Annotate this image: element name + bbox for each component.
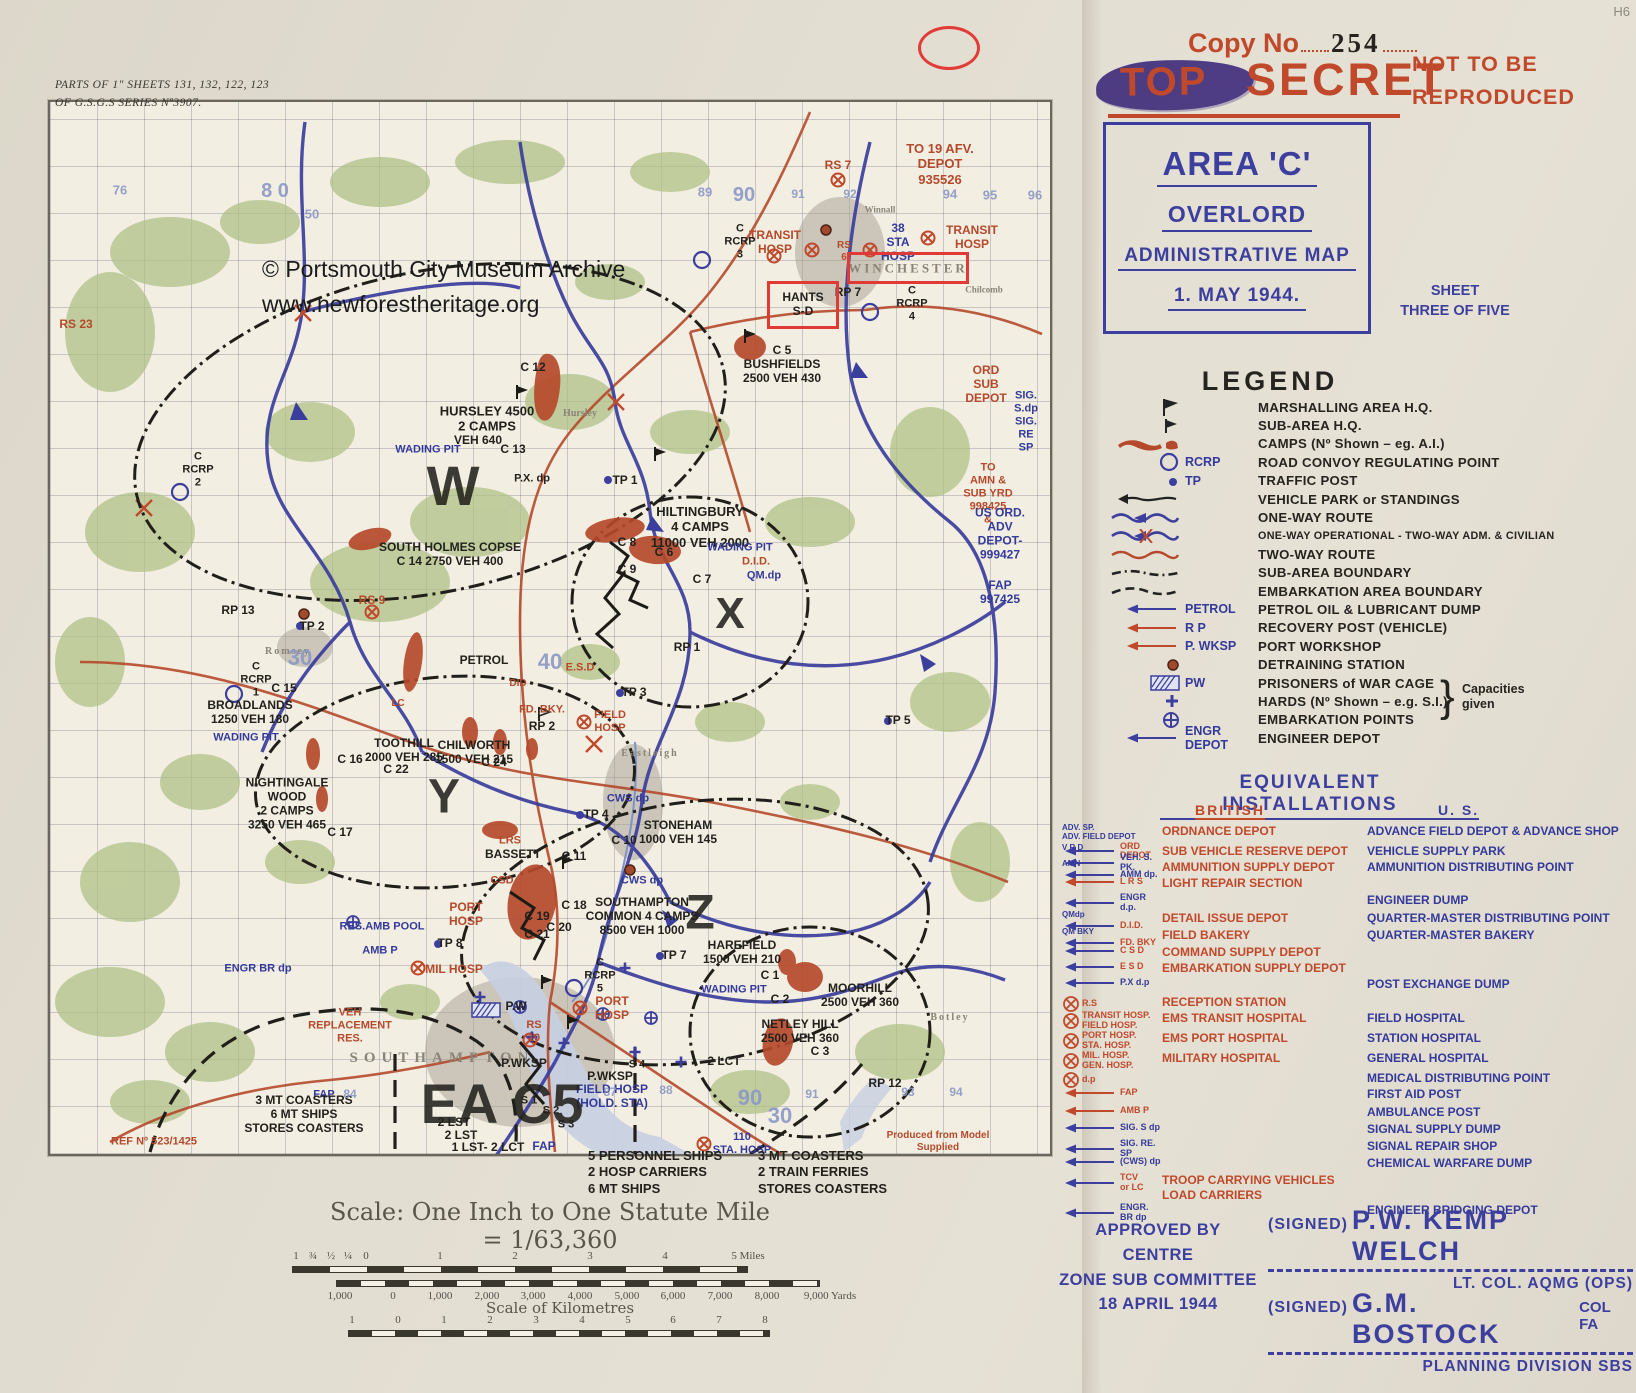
equivalents-row: C S DCOMMAND SUPPLY DEPOT — [1062, 945, 1632, 961]
rhosp-icon — [920, 230, 937, 247]
map-label: FAP — [532, 1139, 555, 1153]
map-label: CSD — [490, 875, 513, 888]
map-label: QM.dp — [747, 570, 781, 583]
arrb-icon: P.X d.p — [1062, 977, 1162, 989]
map-label: TOOTHILL 2000 VEH 285 — [365, 736, 443, 764]
legend-label: MARSHALLING AREA H.Q. — [1258, 400, 1433, 415]
map-label: C 10 — [611, 833, 636, 847]
scale-title: Scale: One Inch to One Statute Mile = 1/… — [330, 1198, 770, 1254]
scale-tick: 5 — [625, 1314, 631, 1326]
det-icon — [819, 223, 833, 237]
map-label: C 12 — [520, 360, 545, 374]
arrb-icon — [1100, 732, 1180, 744]
map-label: C RCRP 2 — [182, 451, 213, 490]
tp-icon — [1100, 474, 1180, 488]
signatory-name: P.W. KEMP WELCH — [1352, 1205, 1627, 1267]
scale-tick: 5 Miles — [731, 1250, 764, 1262]
stamp-top-word: TOP — [1120, 59, 1208, 106]
archive-watermark: © Portsmouth City Museum Archive www.new… — [262, 252, 625, 321]
column-british: BRITISH — [1195, 802, 1265, 820]
arrb-icon: C S D — [1062, 945, 1162, 957]
legend-label: PORT WORKSHOP — [1258, 639, 1381, 654]
pw-icon — [471, 1002, 501, 1018]
map-label: 95 — [983, 187, 997, 202]
map-label: C 11 — [562, 849, 587, 863]
equivalents-row: TRANSIT HOSP. FIELD HOSP.EMS TRANSIT HOS… — [1062, 1011, 1632, 1031]
title-operation: OVERLORD — [1162, 201, 1312, 232]
map-label: C 1 — [761, 968, 780, 982]
us-installation: GENERAL HOSPITAL — [1367, 1051, 1632, 1065]
title-date: 1. MAY 1944. — [1168, 285, 1306, 311]
scale-tick: 7,000 — [708, 1290, 733, 1302]
equivalents-row: SIG. RE. SPSIGNAL REPAIR SHOP — [1062, 1139, 1632, 1156]
subb-icon — [1100, 568, 1180, 578]
map-label: C 3 — [811, 1044, 830, 1058]
map-label: TO 19 AFV. DEPOT 935526 — [885, 141, 995, 187]
flag-icon — [513, 384, 531, 400]
equivalents-row: AMB PAMBULANCE POST — [1062, 1105, 1632, 1122]
legend-abbr: ENGR DEPOT — [1180, 724, 1258, 752]
map-label: AMB P — [362, 945, 397, 958]
map-label: LC — [391, 698, 404, 710]
us-installation: CHEMICAL WARFARE DUMP — [1367, 1156, 1632, 1170]
equivalents-row: ENGR d.p.ENGINEER DUMP — [1062, 893, 1632, 911]
equivalents-row: P.X d.pPOST EXCHANGE DUMP — [1062, 977, 1632, 995]
dotted-rule — [1301, 26, 1329, 52]
british-installation: MILITARY HOSPITAL — [1162, 1051, 1367, 1066]
us-installation: FIELD HOSPITAL — [1367, 1011, 1632, 1025]
red-highlight-box — [767, 281, 839, 329]
map-label: FD. BKY. — [519, 704, 565, 717]
map-label: RP 1 — [674, 640, 700, 654]
legend-label: SUB-AREA H.Q. — [1258, 418, 1362, 433]
map-label: C 15 — [271, 681, 296, 695]
red-oval-annotation — [918, 26, 980, 70]
map-label: C 7 — [693, 572, 712, 586]
british-installation: COMMAND SUPPLY DEPOT — [1162, 945, 1367, 960]
legend-label: RECOVERY POST (VEHICLE) — [1258, 620, 1447, 635]
map-label: C 16 — [337, 752, 362, 766]
equivalent-installations-table: ADV. SP. ADV. FIELD DEPOTORD DEPOTORDNAN… — [1062, 824, 1632, 1221]
equivalents-row: d.pMEDICAL DISTRIBUTING POINT — [1062, 1071, 1632, 1087]
legend-abbr: RCRP — [1180, 455, 1258, 469]
bhard-icon — [558, 1037, 571, 1050]
legend-row: DETRAINING STATION — [1100, 655, 1630, 673]
map-label: 30 — [768, 1103, 792, 1129]
equivalents-row: QMdpD.I.D.DETAIL ISSUE DEPOTQUARTER-MAST… — [1062, 911, 1632, 928]
legend-label: TRAFFIC POST — [1258, 473, 1358, 488]
map-label: HAREFIELD 1500 VEH 210 — [703, 938, 781, 966]
equivalents-row: TCV or LCTROOP CARRYING VEHICLES LOAD CA… — [1062, 1173, 1632, 1203]
map-label: RS 10 — [526, 1019, 541, 1045]
map-label: FIELD HOSP — [594, 709, 626, 735]
scale-tick: 0 — [390, 1290, 396, 1302]
map-label: 89 — [698, 184, 712, 199]
legend-row: SUB-AREA BOUNDARY — [1100, 564, 1630, 582]
map-label: 84 — [343, 1087, 356, 1101]
legend-label: EMBARKATION POINTS — [1258, 712, 1414, 727]
equivalents-row: MIL. HOSP. GEN. HOSP.MILITARY HOSPITALGE… — [1062, 1051, 1632, 1071]
signed-prefix: (SIGNED) — [1268, 1299, 1348, 1317]
arrr-icon — [1100, 622, 1180, 634]
equivalents-row: V R DVEH. S. PK.SUB VEHICLE RESERVE DEPO… — [1062, 844, 1632, 860]
legend-label: ROAD CONVOY REGULATING POINT — [1258, 455, 1500, 470]
flagS-icon — [1100, 418, 1180, 434]
map-label: TRANSIT HOSP — [749, 228, 801, 256]
map-label: Winnall — [865, 205, 896, 216]
bhard-icon — [629, 1046, 642, 1059]
map-label: 93 — [901, 1085, 914, 1099]
scale-tick: 1 — [349, 1314, 355, 1326]
map-label: C RCRP 3 — [724, 223, 755, 262]
map-label: W — [427, 453, 480, 519]
rcrp-icon — [563, 977, 585, 999]
ships-list-left: 5 PERSONNEL SHIPS 2 HOSP CARRIERS 6 MT S… — [588, 1148, 722, 1197]
legend-label: EMBARKATION AREA BOUNDARY — [1258, 584, 1483, 599]
us-installation: AMMUNITION DISTRIBUTING POINT — [1367, 860, 1632, 874]
map-label: 76 — [113, 182, 127, 197]
legend-row: RCRPROAD CONVOY REGULATING POINT — [1100, 453, 1630, 471]
legend-abbr: PW — [1180, 676, 1258, 690]
us-installation: FIRST AID POST — [1367, 1087, 1632, 1101]
map-label: ENGR BR dp — [224, 963, 291, 976]
map-label: P.WKSP — [501, 1056, 547, 1070]
red-highlight-box — [847, 252, 969, 284]
map-label: C 18 — [561, 898, 586, 912]
legend-abbr: R P — [1180, 621, 1258, 635]
map-label: 50 — [305, 206, 319, 221]
rhosp-icon — [410, 960, 427, 977]
map-title-box: AREA 'C' OVERLORD ADMINISTRATIVE MAP 1. … — [1103, 122, 1371, 334]
map-label: P.X. dp — [514, 473, 550, 486]
scale-tick: 2 — [487, 1314, 493, 1326]
map-label: C RCRP 1 — [240, 661, 271, 700]
map-label: VEH 640 — [454, 433, 502, 447]
crossr-icon: TRANSIT HOSP. FIELD HOSP. — [1062, 1011, 1162, 1031]
map-label: C RCRP 4 — [896, 285, 927, 324]
map-label: 30 — [288, 645, 312, 671]
legend-row: VEHICLE PARK or STANDINGS — [1100, 490, 1630, 508]
map-label: TP 7 — [661, 948, 686, 962]
map-label: 94 — [943, 186, 957, 201]
map-label: Eastleigh — [621, 748, 678, 760]
map-label: D.I.D. — [742, 556, 770, 569]
legend-row: PWPRISONERS of WAR CAGE — [1100, 674, 1630, 692]
map-label: REF Nº 523/1425 — [111, 1136, 197, 1149]
legend-row: SUB-AREA H.Q. — [1100, 416, 1630, 434]
rcrp-icon — [691, 249, 713, 271]
signature-kemp-welch: (SIGNED) P.W. KEMP WELCH LT. COL. AQMG (… — [1268, 1205, 1633, 1293]
scale-tick: 4 — [662, 1250, 668, 1262]
map-label: TP 3 — [621, 685, 646, 699]
map-label: Produced from Model Supplied — [882, 1130, 994, 1154]
map-label: RS 23 — [59, 317, 92, 331]
legend-row: MARSHALLING AREA H.Q. — [1100, 398, 1630, 416]
map-label: RP 12 — [868, 1076, 901, 1090]
legend-label: ONE-WAY ROUTE — [1258, 510, 1373, 525]
legend-label: CAMPS (Nº Shown – eg. A.I.) — [1258, 436, 1445, 451]
map-label: 90 — [733, 184, 755, 208]
title-type: ADMINISTRATIVE MAP — [1118, 245, 1356, 271]
map-label: RS 9 — [359, 593, 386, 607]
scale-tick: 1,000 — [428, 1290, 453, 1302]
legend-label: ONE-WAY OPERATIONAL - TWO-WAY ADM. & CIV… — [1258, 530, 1554, 542]
rhosp-icon — [572, 1000, 589, 1017]
map-label: Chilcomb — [965, 285, 1003, 296]
scale-tick: 1 — [437, 1250, 443, 1262]
map-label: C 22 — [383, 762, 408, 776]
us-installation: AMBULANCE POST — [1367, 1105, 1632, 1119]
flagL-icon — [1100, 397, 1180, 417]
signatory-name: G.M. BOSTOCK — [1352, 1288, 1573, 1350]
emb-icon — [1100, 711, 1180, 729]
map-label: 1 LST- 2 LCT — [452, 1140, 525, 1154]
map-label: E.S.D — [566, 662, 595, 675]
legend-row: ONE-WAY OPERATIONAL - TWO-WAY ADM. & CIV… — [1100, 527, 1630, 545]
british-installation: EMBARKATION SUPPLY DEPOT — [1162, 961, 1367, 976]
british-installation: TROOP CARRYING VEHICLES LOAD CARRIERS — [1162, 1173, 1367, 1203]
map-label: C 8 — [618, 535, 637, 549]
map-label: Y — [428, 770, 460, 827]
det-icon — [1100, 658, 1180, 672]
us-installation: VEHICLE SUPPLY PARK — [1367, 844, 1632, 858]
map-label: VEH REPLACEMENT RES. — [308, 1007, 392, 1046]
map-label: CWS dp — [621, 875, 663, 888]
sheet-series-note: PARTS OF 1" SHEETS 131, 132, 122, 123 OF… — [55, 76, 269, 113]
map-label: CWS dp — [607, 793, 649, 806]
legend-title: LEGEND — [1150, 366, 1390, 397]
map-label: BASSETT — [485, 847, 541, 861]
scale-tick: 6 — [670, 1314, 676, 1326]
scale-tick: 9,000 Yards — [804, 1290, 856, 1302]
map-label: NIGHTINGALE WOOD 2 CAMPS 3250 VEH 465 — [246, 776, 329, 833]
map-label: NETLEY HILL 2500 VEH 360 — [761, 1017, 839, 1045]
legend-label: PRISONERS of WAR CAGE — [1258, 676, 1434, 691]
hard-icon — [1100, 693, 1180, 709]
map-label: 91 — [805, 1087, 818, 1101]
equivalents-row: E S DEMBARKATION SUPPLY DEPOT — [1062, 961, 1632, 977]
scale-tick: 6,000 — [661, 1290, 686, 1302]
camp-icon — [1100, 435, 1180, 453]
legend-label: TWO-WAY ROUTE — [1258, 547, 1375, 562]
legend-row: HARDS (Nº Shown – e.g. S.I.) — [1100, 692, 1630, 710]
map-label: 88 — [659, 1083, 672, 1097]
signatory-rank: COL FA — [1579, 1299, 1633, 1333]
crossr-icon: PORT HOSP. STA. HOSP. — [1062, 1031, 1162, 1051]
map-label: C 5 BUSHFIELDS 2500 VEH 430 — [743, 343, 821, 385]
arrr-icon: L R S — [1062, 876, 1162, 888]
scale-tick: 1,000 — [328, 1290, 353, 1302]
scale-tick: ¼ — [344, 1250, 352, 1262]
map-label: Z — [685, 886, 714, 943]
ships-list-right: 3 MT COASTERS 2 TRAIN FERRIES STORES COA… — [758, 1148, 887, 1197]
us-installation: SIGNAL SUPPLY DUMP — [1367, 1122, 1632, 1136]
arrr-icon: FAP — [1062, 1087, 1162, 1099]
map-label: PORT HOSP — [595, 994, 629, 1022]
map-label: C 17 — [327, 825, 352, 839]
rcrp-icon — [859, 301, 881, 323]
map-label: C 6 — [655, 545, 674, 559]
british-installation: LIGHT REPAIR SECTION — [1162, 876, 1367, 891]
arrb-icon: (CWS) dp — [1062, 1156, 1162, 1168]
equivalents-row: FAPFIRST AID POST — [1062, 1087, 1632, 1105]
british-installation: FIELD BAKERY — [1162, 928, 1367, 943]
us-installation: STATION HOSPITAL — [1367, 1031, 1632, 1045]
legend-row: ONE-WAY ROUTE — [1100, 508, 1630, 526]
map-label: WADING PIT — [213, 732, 278, 745]
legend-row: ENGR DEPOTENGINEER DEPOT — [1100, 729, 1630, 747]
map-label: RP 13 — [221, 603, 254, 617]
map-label: WADING PIT — [701, 984, 766, 997]
map-label: 8 0 — [261, 180, 289, 204]
scale-tick: 3 — [533, 1314, 539, 1326]
map-label: 90 — [738, 1085, 762, 1111]
equivalents-row: AMNAMM dp.AMMUNITION SUPPLY DEPOTAMMUNIT… — [1062, 860, 1632, 876]
scale-tick: 8 — [762, 1314, 768, 1326]
map-label: 40 — [538, 649, 562, 675]
not-to-be-reproduced: NOT TO BE REPRODUCED — [1412, 48, 1575, 115]
us-installation: QUARTER-MASTER DISTRIBUTING POINT — [1367, 911, 1632, 925]
scale-tick: 4 — [579, 1314, 585, 1326]
map-label: C RCRP 5 — [584, 957, 615, 996]
equivalents-row: (CWS) dpCHEMICAL WARFARE DUMP — [1062, 1156, 1632, 1173]
arrb-icon: SIG. S dp — [1062, 1122, 1162, 1134]
twoway-icon — [1100, 548, 1180, 560]
british-installation: DETAIL ISSUE DEPOT — [1162, 911, 1367, 926]
legend-label: ENGINEER DEPOT — [1258, 731, 1380, 746]
map-label: HURSLEY 4500 2 CAMPS — [440, 404, 534, 435]
map-label: C 20 — [546, 920, 571, 934]
crossr-icon: MIL. HOSP. GEN. HOSP. — [1062, 1051, 1162, 1071]
bhard-icon — [619, 962, 632, 975]
legend-label: SUB-AREA BOUNDARY — [1258, 565, 1412, 580]
map-label: C 21 — [524, 927, 549, 941]
signatory-title: PLANNING DIVISION SBS — [1268, 1358, 1633, 1376]
pencil-mark: H6 — [1613, 4, 1630, 19]
british-installation: RECEPTION STATION — [1162, 995, 1367, 1010]
equivalents-row: R.SRECEPTION STATION — [1062, 995, 1632, 1011]
map-label: Botley — [930, 1012, 969, 1024]
scanned-map-sheet: TO 19 AFV. DEPOT 935526RS 7TRANSIT HOSPR… — [0, 0, 1636, 1393]
legend-label: DETRAINING STATION — [1258, 657, 1405, 672]
map-label: FAP 997425 — [980, 578, 1020, 606]
map-label: P.W — [505, 999, 526, 1013]
map-label: BROADLANDS 1250 VEH 180 — [207, 698, 292, 726]
arrb-icon — [1100, 603, 1180, 615]
map-label: DID — [509, 678, 526, 690]
arrr-icon — [1100, 640, 1180, 652]
map-label: RP 2 — [529, 719, 555, 733]
flag-icon — [741, 328, 759, 344]
british-installation: ORDNANCE DEPOT — [1162, 824, 1367, 839]
legend-row: PETROLPETROL OIL & LUBRICANT DUMP — [1100, 600, 1630, 618]
signature-bostock: (SIGNED) G.M. BOSTOCK COL FA PLANNING DI… — [1268, 1288, 1633, 1376]
map-label: C 2 — [771, 992, 790, 1006]
map-label: PETROL — [460, 653, 509, 667]
rhosp-icon — [576, 714, 593, 731]
map-label: TP 5 — [885, 713, 910, 727]
map-label: C 13 — [500, 442, 525, 456]
map-label: 94 — [949, 1085, 962, 1099]
map-label: SOUTH HOLMES COPSE C 14 2750 VEH 400 — [379, 540, 521, 568]
legend-label: VEHICLE PARK or STANDINGS — [1258, 492, 1460, 507]
legend-abbr: P. WKSP — [1180, 639, 1258, 653]
map-label: ORD SUB DEPOT — [954, 363, 1018, 405]
map-label: 91 — [791, 187, 804, 201]
oneway-icon — [1100, 511, 1180, 525]
column-us: U. S. — [1438, 802, 1479, 820]
map-label: 96 — [1028, 187, 1042, 202]
capacities-brace: } — [1440, 672, 1455, 722]
legend-label: HARDS (Nº Shown – e.g. S.I.) — [1258, 694, 1448, 709]
scale-tick: 8,000 — [755, 1290, 780, 1302]
scale-yards-bar — [336, 1280, 820, 1287]
title-area: AREA 'C' — [1157, 145, 1318, 187]
map-label: C 24 — [481, 755, 506, 769]
map-label: WADING PIT — [707, 542, 772, 555]
map-label: TP 1 — [612, 473, 637, 487]
map-label: S 4 — [629, 1059, 646, 1072]
map-label: 2 LCT — [707, 1054, 740, 1068]
map-label: TP 2 — [299, 619, 324, 633]
map-label: EA C5 — [421, 1071, 584, 1137]
equivalents-row: SIG. S dpSIGNAL SUPPLY DUMP — [1062, 1122, 1632, 1139]
british-installation: SUB VEHICLE RESERVE DEPOT — [1162, 844, 1367, 859]
us-installation: ENGINEER DUMP — [1367, 893, 1632, 907]
map-label: US ORD. ADV DEPOT-999427 — [975, 506, 1025, 563]
map-label: PORT HOSP — [449, 900, 483, 928]
british-installation: EMS PORT HOSPITAL — [1162, 1031, 1367, 1046]
rhosp-icon — [804, 242, 821, 259]
scale-tick: 0 — [395, 1314, 401, 1326]
rcrp-icon — [1100, 451, 1180, 473]
sheet-number: SHEET THREE OF FIVE — [1395, 282, 1515, 321]
equivalents-row: ADV. SP. ADV. FIELD DEPOTORD DEPOTORDNAN… — [1062, 824, 1632, 844]
legend-row: TWO-WAY ROUTE — [1100, 545, 1630, 563]
approval-note: APPROVED BY CENTRE ZONE SUB COMMITTEE 18… — [1058, 1218, 1258, 1317]
legend: MARSHALLING AREA H.Q.SUB-AREA H.Q.CAMPS … — [1100, 398, 1630, 747]
equivalents-row: QM BKYFD. BKYFIELD BAKERYQUARTER-MASTER … — [1062, 928, 1632, 945]
scale-km-bar — [348, 1330, 770, 1337]
scale-tick: 3 — [587, 1250, 593, 1262]
legend-row: P. WKSPPORT WORKSHOP — [1100, 637, 1630, 655]
scale-tick: ¾ — [309, 1250, 317, 1262]
map-label: SIG. S.dp SIG. RE SP — [1014, 390, 1038, 455]
map-label: C 9 — [618, 562, 637, 576]
arrb-icon: E S D — [1062, 961, 1162, 973]
map-label: RS 7 — [825, 158, 852, 172]
map-label: STONEHAM 1000 VEH 145 — [639, 818, 717, 846]
legend-row: TPTRAFFIC POST — [1100, 472, 1630, 490]
map-label: X — [715, 588, 744, 640]
us-installation: POST EXCHANGE DUMP — [1367, 977, 1632, 991]
legend-label: PETROL OIL & LUBRICANT DUMP — [1258, 602, 1481, 617]
us-installation: QUARTER-MASTER BAKERY — [1367, 928, 1632, 942]
us-installation: SIGNAL REPAIR SHOP — [1367, 1139, 1632, 1153]
us-installation: ADVANCE FIELD DEPOT & ADVANCE SHOP — [1367, 824, 1632, 838]
stamp-underline — [1108, 114, 1400, 118]
map-label: 87 — [603, 1085, 616, 1099]
british-installation: AMMUNITION SUPPLY DEPOT — [1162, 860, 1367, 875]
scale-tick: 7 — [716, 1314, 722, 1326]
map-label: TRANSIT HOSP — [946, 223, 998, 251]
scale-tick: 1 — [441, 1314, 447, 1326]
flag-icon — [538, 974, 556, 990]
scale-tick: 0 — [363, 1250, 369, 1262]
flag-icon — [651, 446, 669, 462]
arrr-icon: AMB P — [1062, 1105, 1162, 1117]
map-label: SOUTHAMPTON COMMON 4 CAMPS 8500 VEH 1000 — [586, 895, 699, 937]
